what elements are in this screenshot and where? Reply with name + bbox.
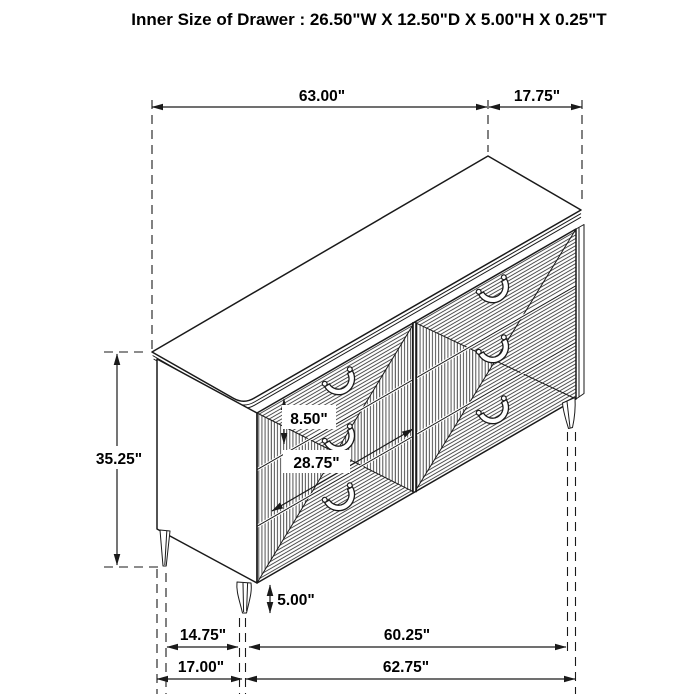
dim-leg-span-depth: 14.75" xyxy=(180,627,226,644)
figure-title: Inner Size of Drawer : 26.50"W X 12.50"D… xyxy=(131,10,607,29)
height-dimension: 35.25" xyxy=(90,352,161,567)
front-right-leg xyxy=(563,398,576,429)
dim-overall-width: 63.00" xyxy=(299,88,345,105)
back-left-leg xyxy=(160,530,170,566)
dim-overall-depth: 17.75" xyxy=(514,88,560,105)
front-left-leg xyxy=(237,582,251,613)
dimension-diagram: Inner Size of Drawer : 26.50"W X 12.50"D… xyxy=(0,0,700,700)
dim-drawer-height: 8.50" xyxy=(290,411,328,428)
dim-base-width: 62.75" xyxy=(383,659,429,676)
dresser-right-edge xyxy=(576,225,584,400)
dim-drawer-width: 28.75" xyxy=(293,455,339,472)
dim-overall-height: 35.25" xyxy=(96,451,142,468)
dim-base-depth: 17.00" xyxy=(178,659,224,676)
dim-leg-height: 5.00" xyxy=(277,592,315,609)
dresser xyxy=(152,156,584,613)
dresser-drawing-svg: Inner Size of Drawer : 26.50"W X 12.50"D… xyxy=(0,0,700,700)
dim-leg-span-width: 60.25" xyxy=(384,627,430,644)
